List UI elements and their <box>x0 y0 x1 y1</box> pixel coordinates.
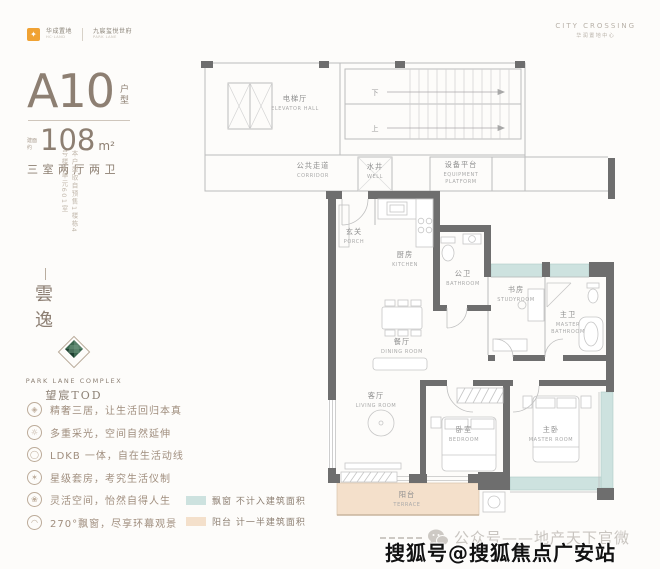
selling-point-text: 精奢三居，让生活回归本真 <box>50 402 182 417</box>
room-label: MASTER <box>556 322 580 328</box>
sohu-watermark: 搜狐号@搜狐焦点广安站 <box>385 537 616 566</box>
diamond-gem-icon <box>50 332 98 372</box>
unit-headline: A10 户型 建面 约 108 m² 三室两厅两卫 <box>27 68 167 177</box>
room-label: PORCH <box>344 239 364 245</box>
selling-point-text: LDKB 一体，自在生活动线 <box>50 447 184 462</box>
room-label: 上 <box>372 124 379 133</box>
room-label: KITCHEN <box>392 262 418 268</box>
room-label: MASTER ROOM <box>529 437 573 443</box>
project-name-en: CITY CROSSING <box>555 22 636 30</box>
room-label: 设备平台 <box>445 160 478 169</box>
room-label: PLATFORM <box>445 179 476 185</box>
room-label: 主卧 <box>543 425 559 434</box>
selling-point-item: ◠ 270°飘窗，尽享环幕观景 <box>27 515 184 530</box>
tick-divider <box>45 268 46 280</box>
project-mark: CITY CROSSING 华润置地中心 <box>555 22 636 39</box>
flower-icon: ❀ <box>27 492 42 507</box>
room-label: STUDYROOM <box>497 297 535 303</box>
selling-point-text: 星级套房，考究生活仪制 <box>50 470 171 485</box>
unit-area: 建面 约 108 m² <box>27 126 167 155</box>
floor-plan: 电梯厅ELEVATOR HALL公共走道CORRIDOR水井WELL设备平台EQ… <box>195 55 635 525</box>
brand-divider <box>82 28 83 41</box>
room-label: BEDROOM <box>449 437 479 443</box>
room-label: CORRIDOR <box>297 173 329 179</box>
terrace-zone <box>337 483 479 515</box>
selling-points: ◈ 精奢三居，让生活回归本真 ☼ 多重采光，空间自然延伸 ◯ LDKB 一体，自… <box>27 402 184 530</box>
unit-layout: 三室两厅两卫 <box>27 161 167 177</box>
room-label: 公共走道 <box>297 161 330 170</box>
room-label: EQUIPMENT <box>444 172 479 178</box>
room-label: BATHROOM <box>446 281 480 287</box>
selling-point-item: ◈ 精奢三居，让生活回归本真 <box>27 402 184 417</box>
project-name-cn: 华润置地中心 <box>555 32 636 39</box>
selling-point-text: 多重采光，空间自然延伸 <box>50 425 171 440</box>
room-label: TERRACE <box>392 502 420 508</box>
room-label: 水井 <box>367 162 383 171</box>
brand-lockup: ✦ 华成置地 HC·LAND 九宸玺悦世府 PARK LANE <box>27 28 132 41</box>
selling-point-item: ❀ 灵活空间，怡然自得人生 <box>27 492 184 507</box>
tod-logo-cn: 望宸TOD <box>24 387 124 403</box>
room-label: DINING ROOM <box>381 349 423 355</box>
room-label: 餐厅 <box>394 337 410 346</box>
star-icon: ✶ <box>27 470 42 485</box>
room-label: LIVING ROOM <box>356 403 397 409</box>
brand-right-sub: PARK LANE <box>93 36 132 40</box>
room-label: 阳台 <box>399 490 415 499</box>
unit-code: A10 <box>27 68 114 114</box>
selling-point-item: ✶ 星级套房，考究生活仪制 <box>27 470 184 485</box>
room-label: 下 <box>372 89 379 97</box>
room-label: 玄关 <box>346 227 362 236</box>
room-label: BATHROOM <box>551 329 585 335</box>
source-note: 本户型取自预售1楼栋4号楼4单元601室 <box>59 150 79 238</box>
room-label: 客厅 <box>368 391 384 400</box>
room-label: 厨房 <box>397 250 413 259</box>
tod-logo-en: PARK LANE COMPLEX <box>24 377 124 385</box>
divider <box>28 120 130 121</box>
room-label: 卧室 <box>456 425 472 434</box>
brand-left: 华成置地 HC·LAND <box>46 29 72 39</box>
area-unit: m² <box>98 139 115 155</box>
diamond-icon: ◈ <box>27 402 42 417</box>
flow-icon: ◯ <box>27 447 42 462</box>
unit-code-suffix: 户型 <box>117 84 130 106</box>
selling-point-text: 270°飘窗，尽享环幕观景 <box>50 515 177 530</box>
project-name-vertical: 雲逸 <box>29 284 55 336</box>
sun-icon: ☼ <box>27 425 42 440</box>
tod-logo: PARK LANE COMPLEX 望宸TOD <box>24 332 124 403</box>
selling-point-text: 灵活空间，怡然自得人生 <box>50 492 171 507</box>
room-label: ELEVATOR HALL <box>271 106 319 112</box>
area-prefix-bottom: 约 <box>27 145 37 152</box>
room-label: 电梯厅 <box>283 94 308 103</box>
brand-logo-icon: ✦ <box>27 28 40 41</box>
brand-left-sub: HC·LAND <box>46 36 72 40</box>
fan-icon: ◠ <box>27 515 42 530</box>
room-label: 主卫 <box>560 310 576 319</box>
stair-arrows <box>387 90 504 131</box>
selling-point-item: ☼ 多重采光，空间自然延伸 <box>27 425 184 440</box>
brand-right: 九宸玺悦世府 PARK LANE <box>93 29 132 39</box>
room-label: WELL <box>367 174 383 180</box>
room-label: 公卫 <box>455 269 471 278</box>
selling-point-item: ◯ LDKB 一体，自在生活动线 <box>27 447 184 462</box>
room-label: 书房 <box>508 285 524 294</box>
